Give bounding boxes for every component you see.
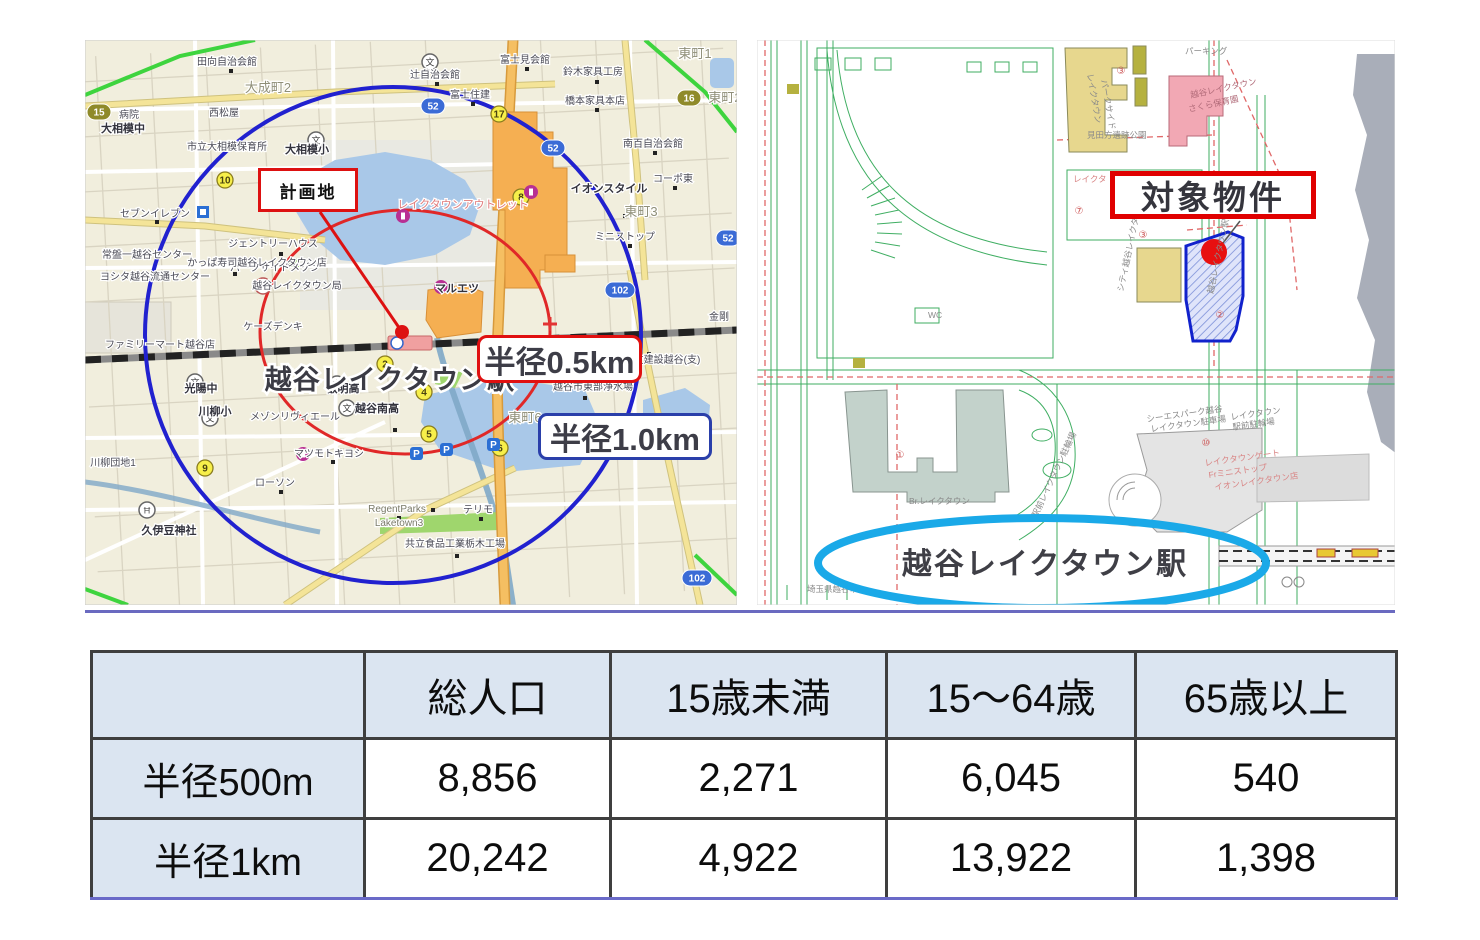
parcel-number: ① bbox=[896, 450, 905, 461]
poi-dot bbox=[393, 428, 397, 432]
route-shield-number: 15 bbox=[93, 108, 105, 119]
section-divider bbox=[85, 610, 1395, 613]
row-label-1km: 半径1km bbox=[92, 819, 365, 899]
parking-icon-letter: P bbox=[443, 445, 450, 456]
poi-dot bbox=[479, 517, 483, 521]
map-label: マルエツ bbox=[435, 283, 479, 295]
poi-dot bbox=[279, 490, 283, 494]
map-label: ジェントリーハウス bbox=[228, 238, 318, 250]
map-label: 西松屋 bbox=[209, 106, 239, 119]
route-shield-number: 52 bbox=[427, 102, 439, 113]
map-label: 光陽中 bbox=[184, 381, 218, 395]
school-icon-glyph: 文 bbox=[342, 403, 351, 414]
map-label: 東町6 bbox=[508, 410, 541, 425]
map-label: 病院 bbox=[119, 108, 139, 121]
radius-area-map-canvas: 52525210210216151017892456PPP文文文文文文〒Ħ 大相… bbox=[85, 40, 737, 605]
plan-label: WC bbox=[928, 310, 942, 320]
map-label: メゾンリヴィエール bbox=[250, 410, 340, 423]
map-label: 南百自治会館 bbox=[623, 137, 683, 150]
cell-500m-total: 8,856 bbox=[365, 739, 611, 819]
poi-dot bbox=[155, 220, 159, 224]
map-label: 越谷南高 bbox=[354, 401, 399, 415]
cell-500m-15-64: 6,045 bbox=[887, 739, 1136, 819]
numbered-badge-text: 9 bbox=[202, 464, 208, 475]
cell-1km-15-64: 13,922 bbox=[887, 819, 1136, 899]
shop-icon-glyph bbox=[401, 213, 405, 220]
cell-1km-total: 20,242 bbox=[365, 819, 611, 899]
route-shield-number: 16 bbox=[683, 94, 695, 105]
poi-dot bbox=[279, 252, 283, 256]
map-label: セブンイレブン bbox=[120, 207, 190, 220]
poi-dot bbox=[431, 508, 435, 512]
poi-dot bbox=[595, 108, 599, 112]
poi-dot bbox=[435, 82, 439, 86]
map-label: 辻自治会館 bbox=[410, 68, 460, 81]
parcel-number: ③ bbox=[1139, 230, 1148, 241]
page: 52525210210216151017892456PPP文文文文文文〒Ħ 大相… bbox=[0, 0, 1480, 940]
numbered-badge-text: 10 bbox=[219, 176, 231, 187]
poi-dot bbox=[331, 460, 335, 464]
plan-label: Br.レイクタウン bbox=[909, 496, 970, 506]
map-label: 大相模中 bbox=[101, 121, 145, 135]
map-label: 東町3 bbox=[624, 204, 657, 219]
col-header-under15: 15歳未満 bbox=[611, 652, 887, 739]
col-header-15-64: 15〜64歳 bbox=[887, 652, 1136, 739]
map-label: 鈴木家具工房 bbox=[563, 65, 623, 78]
map-label: 川柳団地1 bbox=[90, 456, 136, 469]
poi-dot bbox=[525, 67, 529, 71]
map-label: 富士住建 bbox=[450, 88, 490, 101]
map-label: 川柳小 bbox=[198, 404, 232, 418]
route-shield-number: 102 bbox=[612, 286, 629, 297]
map-label: 久伊豆神社 bbox=[142, 523, 197, 537]
map-label: 共立食品工業栃木工場 bbox=[405, 537, 505, 550]
plan-label: レイクタ bbox=[1073, 174, 1107, 184]
target-property-callout: 対象物件 bbox=[1110, 171, 1316, 219]
radius-500m-callout: 半径0.5km bbox=[477, 335, 642, 383]
map-label: 富士見会館 bbox=[500, 53, 550, 66]
plan-label: 見田方遺跡公園 bbox=[1087, 130, 1147, 140]
map-label: ファミリーマート越谷店 bbox=[105, 338, 215, 351]
row-label-500m: 半径500m bbox=[92, 739, 365, 819]
col-header-blank bbox=[92, 652, 365, 739]
map-label: Laketown3 bbox=[375, 518, 424, 529]
site-plan-map: パーキングレイクタウンパークサイド越谷レイクタウンさくら保育園見田方遺跡公園レイ… bbox=[757, 40, 1395, 605]
route-shield-number: 52 bbox=[722, 234, 734, 245]
map-label: かっぱ寿司越谷レイクタウン店 bbox=[187, 256, 326, 269]
cell-500m-65plus: 540 bbox=[1136, 739, 1397, 819]
cell-1km-65plus: 1,398 bbox=[1136, 819, 1397, 899]
parking-icon-letter: P bbox=[490, 440, 497, 451]
poi-dot bbox=[673, 186, 677, 190]
map-label: ミニストップ bbox=[595, 231, 655, 243]
map-label: コーポ東 bbox=[653, 172, 693, 185]
plan-site-callout: 計画地 bbox=[258, 168, 358, 212]
poi-dot bbox=[595, 80, 599, 84]
table-row: 半径500m 8,856 2,271 6,045 540 bbox=[92, 739, 1397, 819]
map-label: 橋本家具本店 bbox=[565, 94, 625, 107]
numbered-badge-text: 17 bbox=[493, 110, 505, 121]
map-label: テリモ bbox=[463, 505, 493, 516]
population-table: 総人口 15歳未満 15〜64歳 65歳以上 半径500m 8,856 2,27… bbox=[90, 650, 1398, 900]
convenience-icon-glyph bbox=[200, 209, 206, 215]
plan-site-marker bbox=[395, 325, 409, 339]
map-label: 大相模小 bbox=[285, 142, 329, 156]
map-label: 東町2 bbox=[708, 90, 737, 105]
poi-dot bbox=[229, 69, 233, 73]
station-name-right: 越谷レイクタウン駅 bbox=[902, 548, 1188, 581]
map-label: 東町1 bbox=[678, 46, 711, 61]
cell-500m-under15: 2,271 bbox=[611, 739, 887, 819]
map-label: 大成町2 bbox=[245, 80, 291, 95]
numbered-badge-text: 5 bbox=[426, 430, 432, 441]
table-row: 半径1km 20,242 4,922 13,922 1,398 bbox=[92, 819, 1397, 899]
parcel-number: ③ bbox=[1117, 66, 1126, 77]
plan-label: パーキング bbox=[1185, 46, 1228, 56]
map-label: ローソン bbox=[255, 478, 295, 489]
cell-1km-under15: 4,922 bbox=[611, 819, 887, 899]
map-label: 越谷レイクタウン局 bbox=[252, 279, 341, 292]
poi-dot bbox=[455, 554, 459, 558]
poi-dot bbox=[628, 244, 632, 248]
shrine-icon-glyph: Ħ bbox=[144, 506, 151, 516]
map-label: マツモトキヨシ bbox=[294, 449, 364, 460]
map-label: 金剛 bbox=[709, 310, 729, 323]
parking-icon-letter: P bbox=[413, 449, 420, 460]
map-label: RegentParks bbox=[368, 504, 426, 515]
route-shield-number: 52 bbox=[547, 144, 559, 155]
map-label: ヨシタ越谷流通センター bbox=[100, 270, 210, 283]
route-shield-number: 102 bbox=[689, 574, 706, 585]
map-label: レイクタウンアウトレット bbox=[397, 198, 528, 211]
table-header-row: 総人口 15歳未満 15〜64歳 65歳以上 bbox=[92, 652, 1397, 739]
map-label: 常盤一越谷センター bbox=[102, 248, 192, 261]
shop-icon-glyph bbox=[529, 189, 533, 196]
site-plan-canvas: パーキングレイクタウンパークサイド越谷レイクタウンさくら保育園見田方遺跡公園レイ… bbox=[757, 40, 1395, 605]
parcel-number: ② bbox=[1216, 310, 1225, 321]
radius-area-map: 52525210210216151017892456PPP文文文文文文〒Ħ 大相… bbox=[85, 40, 737, 605]
col-header-total: 総人口 bbox=[365, 652, 611, 739]
poi-dot bbox=[653, 151, 657, 155]
map-label: ケーズデンキ bbox=[243, 320, 303, 333]
map-label: イオンスタイル bbox=[571, 182, 648, 195]
col-header-65plus: 65歳以上 bbox=[1136, 652, 1397, 739]
radius-1km-callout: 半径1.0km bbox=[538, 413, 712, 460]
map-label: 市立大相模保育所 bbox=[187, 140, 267, 153]
parcel-number: ⑦ bbox=[1075, 206, 1084, 217]
poi-dot bbox=[583, 396, 587, 400]
map-label: 田向自治会館 bbox=[197, 55, 257, 68]
school-icon-glyph: 文 bbox=[425, 57, 434, 68]
poi-dot bbox=[471, 102, 475, 106]
parcel-number: ⑩ bbox=[1202, 438, 1211, 449]
